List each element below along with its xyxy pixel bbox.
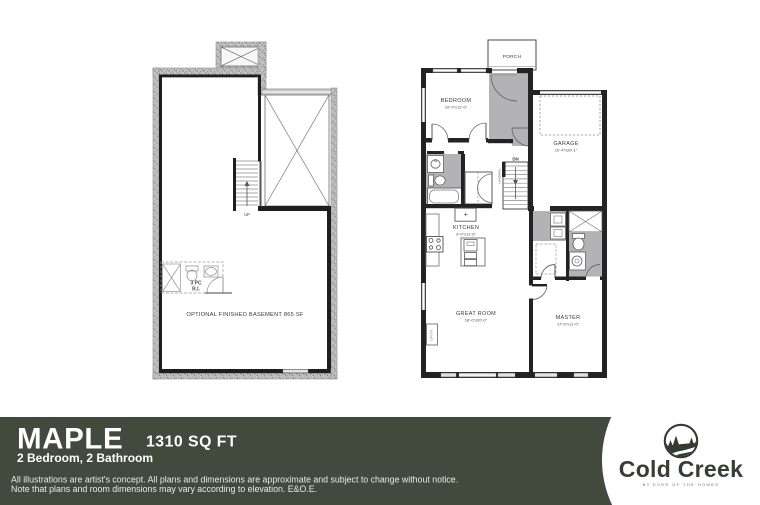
svg-text:10'-0"x12'-0": 10'-0"x12'-0" bbox=[445, 105, 468, 110]
svg-text:1310 SQ FT: 1310 SQ FT bbox=[146, 434, 237, 451]
svg-text:OPTIONAL FINISHED BASEMENT 865: OPTIONAL FINISHED BASEMENT 865 SF bbox=[186, 312, 303, 318]
svg-text:HANDRAIL: HANDRAIL bbox=[498, 168, 502, 184]
svg-text:10'-4"x20'-1": 10'-4"x20'-1" bbox=[555, 148, 578, 153]
svg-text:9'-0"x11'-6": 9'-0"x11'-6" bbox=[456, 232, 476, 237]
svg-text:GREAT ROOM: GREAT ROOM bbox=[456, 311, 496, 317]
svg-text:2 Bedroom, 2 Bathroom: 2 Bedroom, 2 Bathroom bbox=[17, 451, 153, 465]
svg-text:KITCHEN: KITCHEN bbox=[453, 225, 479, 231]
svg-text:Note that plans and room dimen: Note that plans and room dimensions may … bbox=[11, 484, 317, 494]
svg-text:BEDROOM: BEDROOM bbox=[441, 98, 472, 104]
svg-text:MASTER: MASTER bbox=[556, 315, 581, 321]
svg-text:Cold Creek: Cold Creek bbox=[619, 456, 743, 482]
svg-text:OPT F.P.: OPT F.P. bbox=[430, 329, 434, 340]
svg-text:R.I.: R.I. bbox=[192, 287, 200, 293]
svg-text:17'-0"x11'-0": 17'-0"x11'-0" bbox=[557, 322, 580, 327]
svg-text:DN: DN bbox=[512, 157, 518, 162]
svg-text:BY EVER OF THE HOMES: BY EVER OF THE HOMES bbox=[643, 482, 720, 487]
svg-text:PORCH: PORCH bbox=[503, 54, 522, 60]
svg-text:UP: UP bbox=[244, 212, 250, 217]
svg-text:All illustrations are artist's: All illustrations are artist's concept. … bbox=[11, 475, 458, 485]
svg-text:GARAGE: GARAGE bbox=[553, 141, 578, 147]
svg-text:18'-0"x20'-0": 18'-0"x20'-0" bbox=[465, 318, 488, 323]
